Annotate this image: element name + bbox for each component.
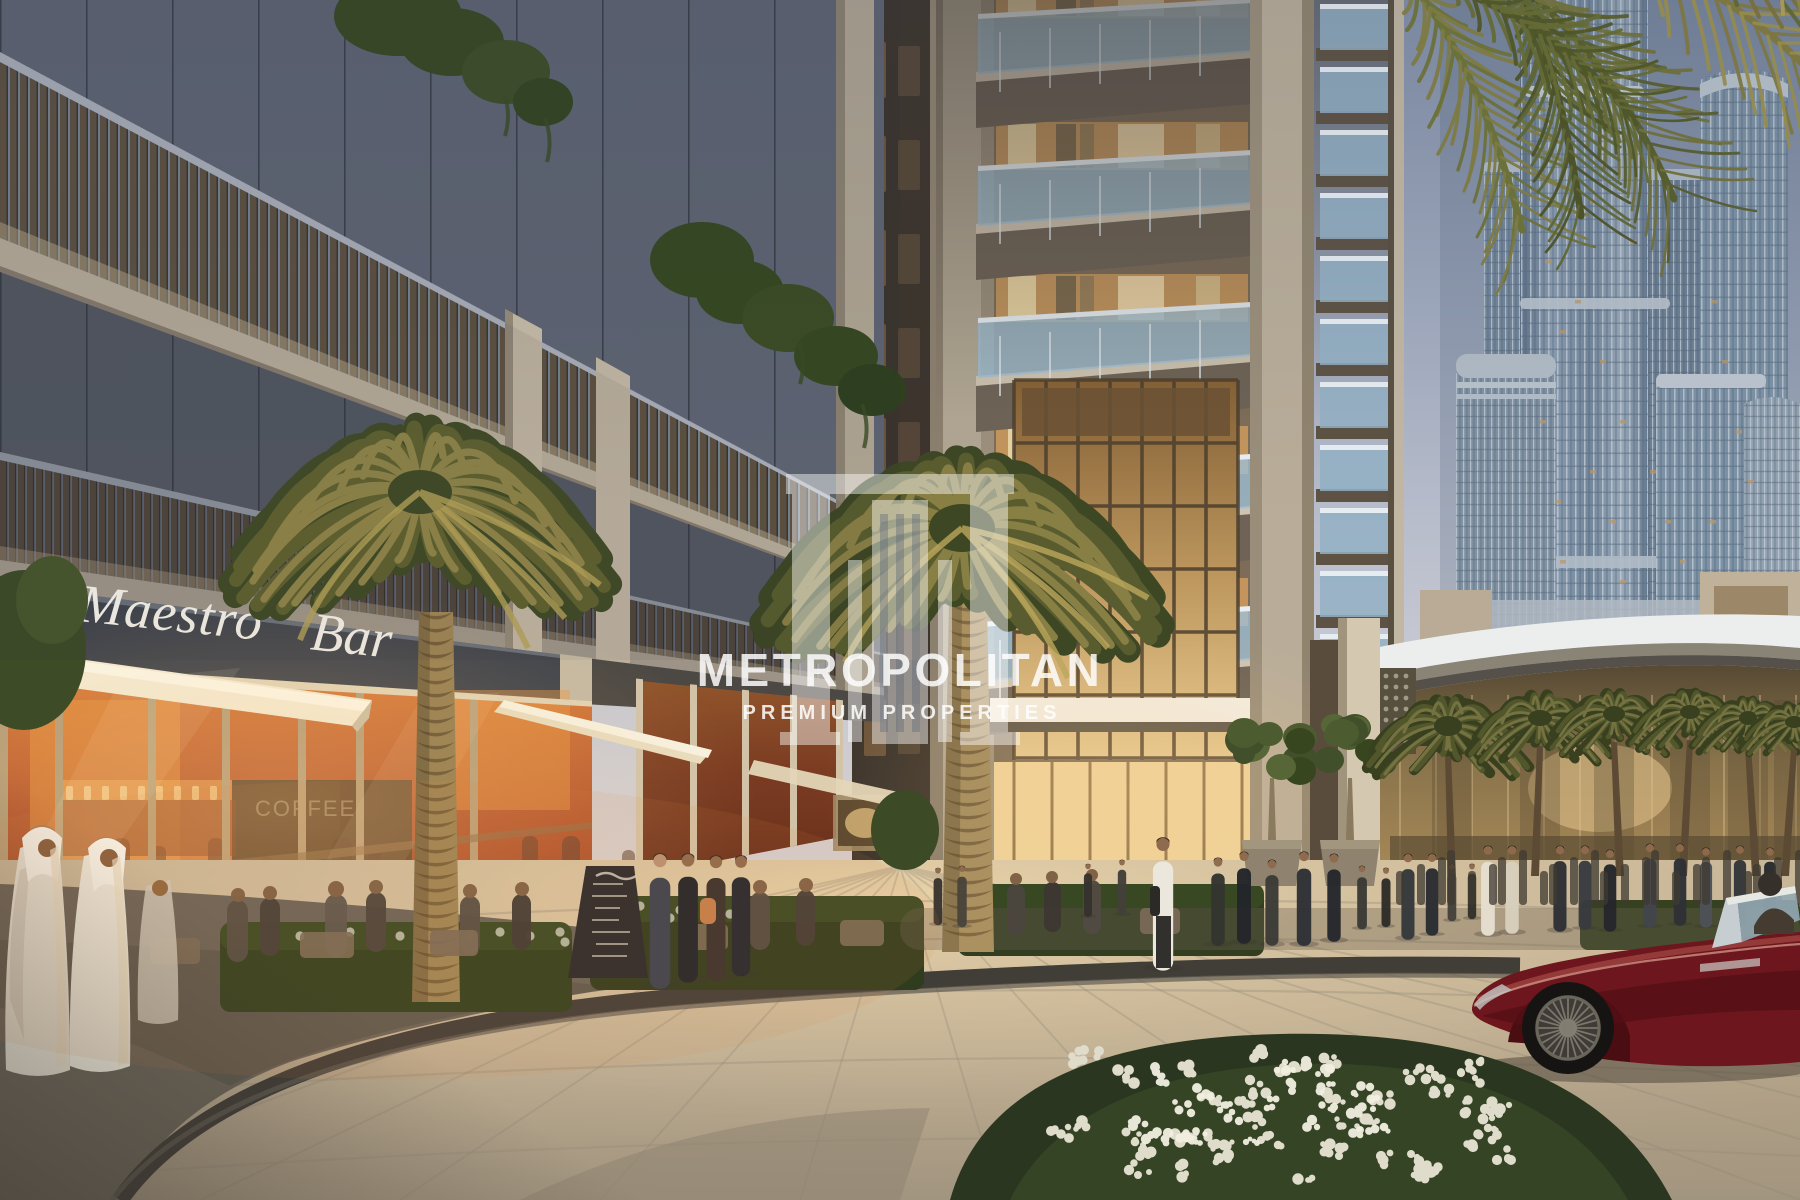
svg-text:METROPOLITAN: METROPOLITAN	[697, 644, 1104, 696]
svg-text:PREMIUM PROPERTIES: PREMIUM PROPERTIES	[743, 702, 1062, 724]
